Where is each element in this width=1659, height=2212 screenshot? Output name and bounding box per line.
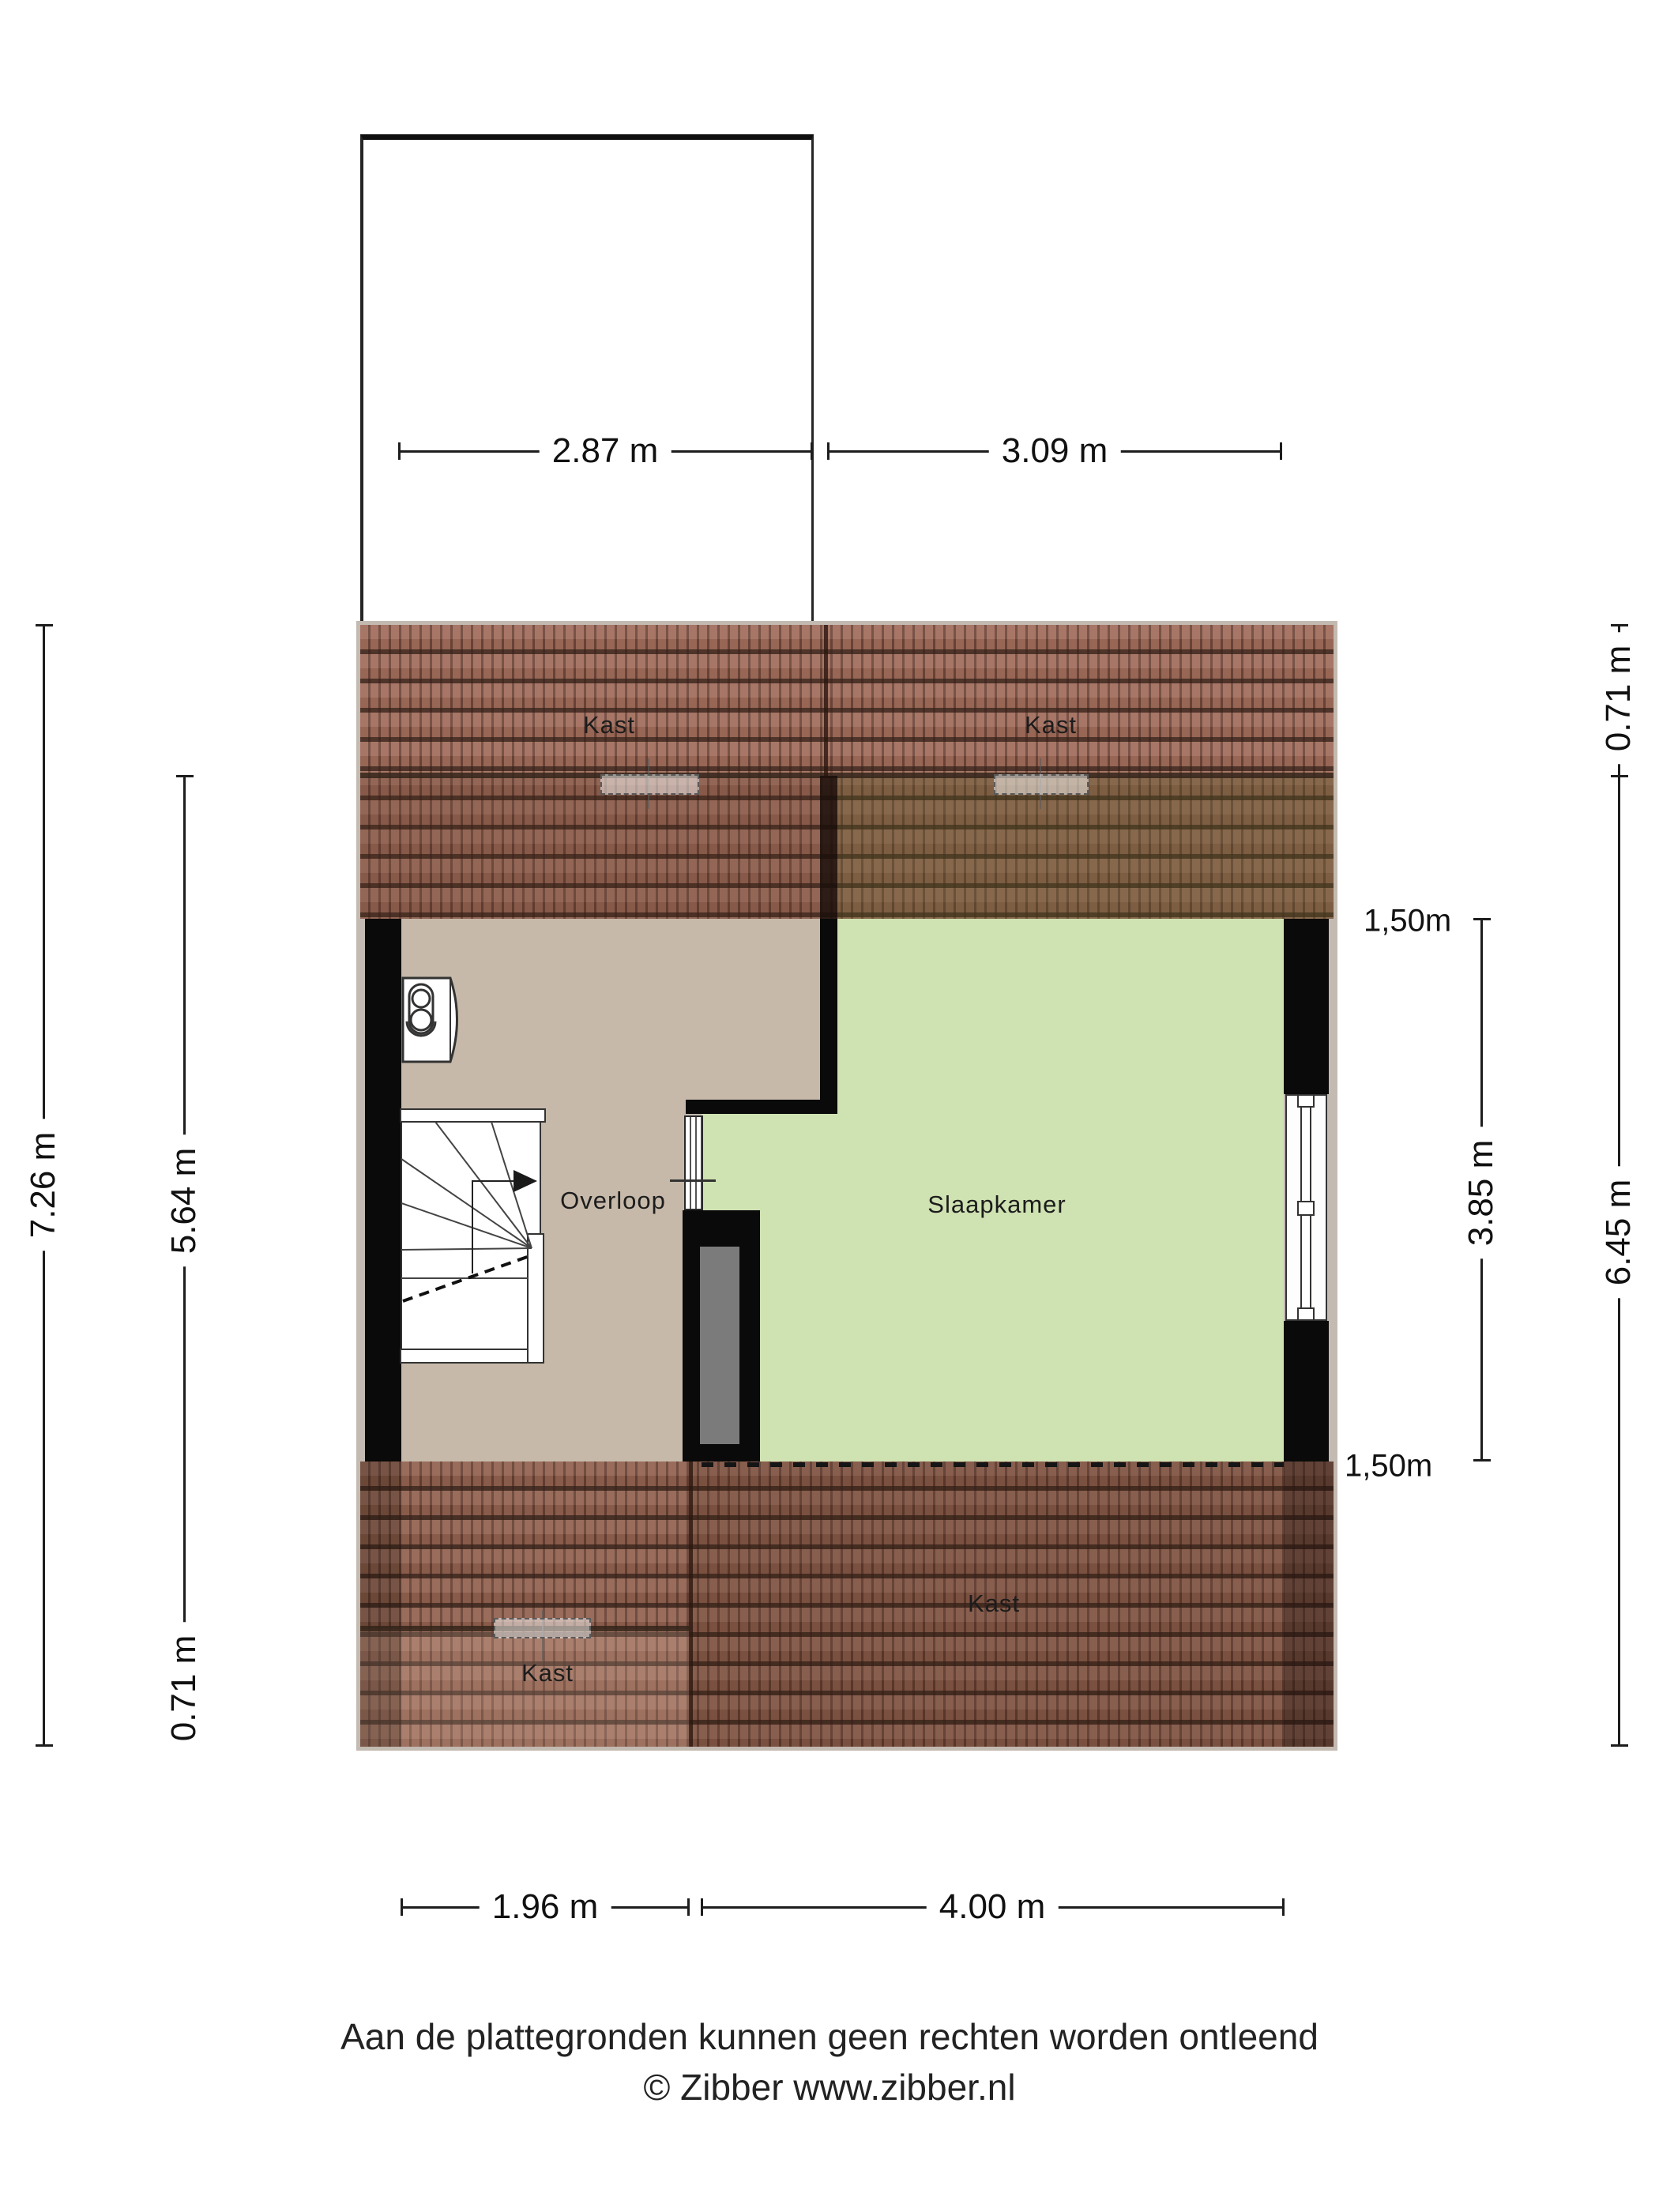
roof-band-top <box>360 625 1334 919</box>
tick <box>827 442 829 460</box>
tick <box>1611 775 1628 777</box>
dim-label-roof-right-width: 3.09 m <box>989 431 1121 472</box>
room-label-slaapkamer: Slaapkamer <box>927 1191 1066 1219</box>
room-label-kast-bottom-right: Kast <box>968 1589 1020 1618</box>
height-marker-top: 1,50m <box>1360 904 1454 939</box>
stairs <box>400 1108 547 1364</box>
window-block-top <box>1297 1094 1315 1108</box>
tick <box>36 1744 53 1747</box>
door-leaf <box>684 1115 703 1210</box>
floorplan-page: Kast Kast Overloop Slaapkamer Kast Kast … <box>0 0 1659 2212</box>
tick <box>1280 442 1282 460</box>
roof-hatch-top-left <box>600 774 699 795</box>
tick <box>398 442 401 460</box>
dim-label-eaves-top-right: 0.71 m <box>1598 633 1639 765</box>
roof-band-bottom <box>360 1461 1334 1747</box>
roof-top-seam-wall <box>820 776 837 919</box>
height-marker-bottom: 1,50m <box>1341 1449 1435 1484</box>
room-label-overloop: Overloop <box>560 1187 666 1215</box>
shaft-duct <box>700 1247 739 1444</box>
tick <box>811 442 813 460</box>
knee-wall-line-top <box>360 773 1334 778</box>
dormer-outline <box>360 134 814 625</box>
dim-label-overloop-width: 1.96 m <box>480 1887 611 1928</box>
wall-right-upper <box>1284 919 1329 1094</box>
dim-label-bedroom-height: 3.85 m <box>1461 1127 1502 1259</box>
wall-divider-jog <box>686 1100 837 1114</box>
tick <box>1473 918 1491 920</box>
roof-top-seam <box>824 625 828 776</box>
height-150-dashed-line <box>702 1462 1284 1467</box>
washing-machine-icon <box>401 976 468 1063</box>
wall-divider-upper <box>820 919 837 1100</box>
tick <box>401 1898 403 1916</box>
roof-hatch-bottom-left <box>494 1618 591 1638</box>
tick <box>1611 1744 1628 1747</box>
tick <box>1473 1459 1491 1461</box>
dim-label-total-height-left: 7.26 m <box>23 1119 64 1251</box>
footer-disclaimer: Aan de plattegronden kunnen geen rechten… <box>340 2015 1319 2058</box>
dim-label-eaves-bottom-left: 0.71 m <box>164 1623 205 1755</box>
tick <box>36 624 53 626</box>
tick <box>687 1898 690 1916</box>
wall-left <box>365 919 401 1461</box>
window-block-middle <box>1297 1201 1315 1216</box>
dim-label-bedroom-width: 4.00 m <box>927 1887 1059 1928</box>
window-block-bottom <box>1297 1307 1315 1321</box>
roof-hatch-top-right <box>994 774 1089 795</box>
room-label-kast-top-right: Kast <box>1025 711 1077 739</box>
dim-label-right-height: 6.45 m <box>1598 1167 1639 1299</box>
tick <box>176 775 194 777</box>
dim-label-dormer-width: 2.87 m <box>540 431 671 472</box>
tick <box>701 1898 703 1916</box>
door-swing-tick <box>670 1179 716 1182</box>
roof-bottom-seam <box>689 1461 693 1747</box>
room-label-kast-top-left: Kast <box>583 711 635 739</box>
footer-copyright: © Zibber www.zibber.nl <box>643 2066 1015 2109</box>
room-label-kast-bottom-left: Kast <box>521 1659 574 1687</box>
wall-right-lower <box>1284 1321 1329 1461</box>
tick <box>1282 1898 1285 1916</box>
tick <box>1611 624 1628 626</box>
dim-label-inner-height-left: 5.64 m <box>164 1135 205 1267</box>
